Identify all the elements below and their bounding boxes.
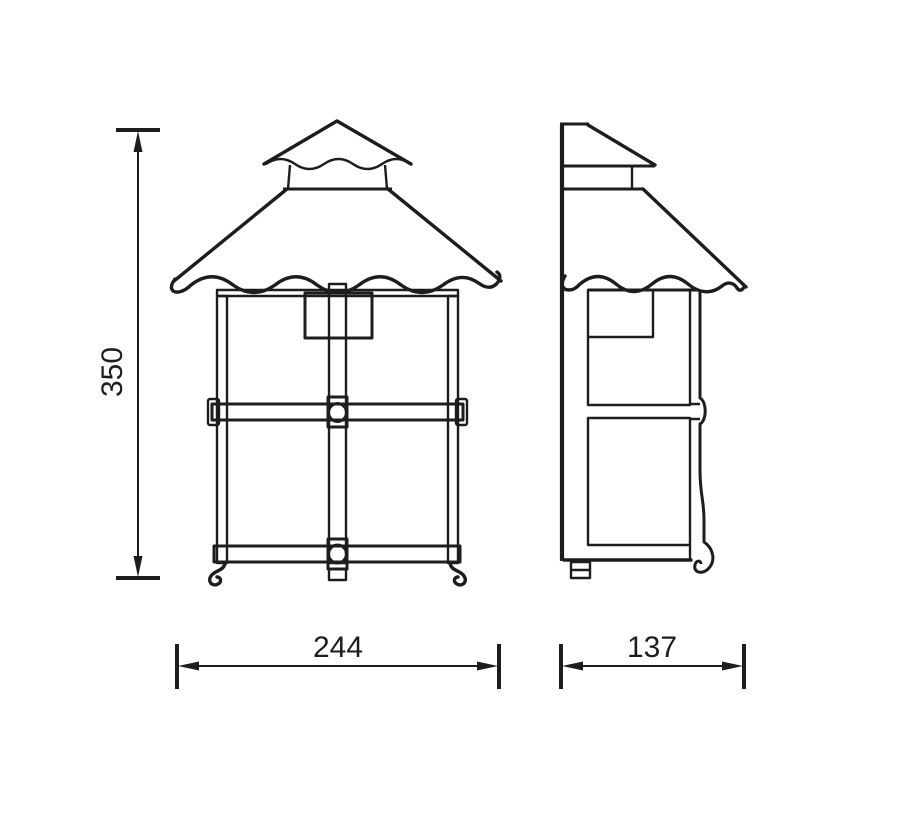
front-center-strap	[329, 284, 346, 563]
height-dimension: 350	[96, 130, 160, 578]
width-dimension-arrow-left	[178, 662, 199, 671]
front-bottom-tab	[329, 569, 346, 580]
front-left-post	[217, 296, 227, 563]
depth-dimension-label: 137	[627, 631, 677, 664]
front-cap-roof	[264, 121, 411, 164]
front-right-post	[448, 296, 458, 563]
height-dimension-arrow-down	[134, 556, 143, 577]
width-dimension-arrow-right	[477, 662, 498, 671]
side-roof-slope	[643, 189, 746, 287]
width-dimension: 244	[177, 631, 499, 689]
front-cap-wave-edge	[266, 159, 411, 169]
front-bottom-band	[214, 546, 460, 562]
front-right-foot-curl	[450, 563, 465, 585]
side-cap-slope	[588, 125, 655, 165]
height-dimension-arrow-up	[134, 131, 143, 152]
technical-drawing: 350 244 137	[0, 0, 900, 824]
front-lamp-housing	[305, 293, 372, 338]
front-roof-right-slope	[388, 189, 501, 281]
side-view	[560, 124, 746, 578]
drawing-canvas: 350 244 137	[0, 0, 900, 824]
width-dimension-label: 244	[313, 631, 363, 664]
side-band-edges	[690, 404, 700, 419]
front-bottom-rivet	[329, 545, 347, 563]
side-upper-panel	[588, 290, 690, 405]
side-front-contour	[695, 291, 713, 572]
front-left-foot-curl	[210, 563, 225, 585]
depth-dimension: 137	[561, 631, 744, 689]
side-lower-panel	[588, 418, 690, 545]
side-lamp-housing	[588, 291, 653, 337]
front-roof-left-slope	[174, 189, 287, 281]
height-dimension-label: 350	[96, 347, 129, 397]
front-middle-band	[212, 404, 463, 420]
depth-dimension-arrow-right	[722, 662, 743, 671]
depth-dimension-arrow-left	[562, 662, 583, 671]
front-view	[172, 121, 501, 585]
